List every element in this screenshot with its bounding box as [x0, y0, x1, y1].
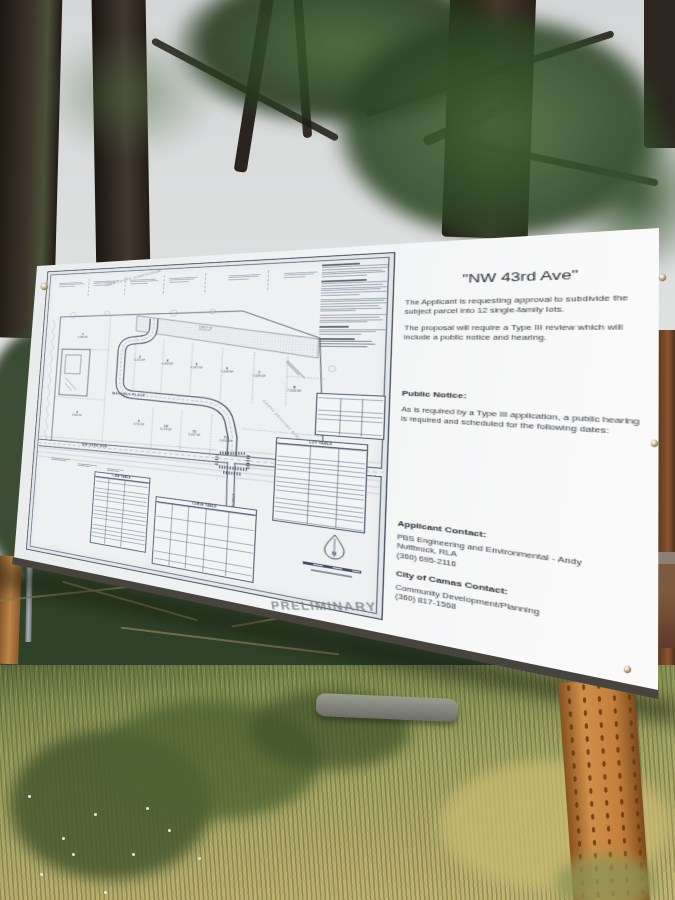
- note-block: [320, 314, 387, 323]
- note-block: [321, 278, 388, 296]
- lot-label-3: 35,250 SF: [129, 355, 150, 362]
- public-notice-body: As is required by a Type III application…: [401, 405, 649, 438]
- screw-icon: [41, 283, 48, 290]
- intro-paragraph-2: The proposal will require a Type III rev…: [404, 322, 650, 342]
- lot-label-2: 25,003 SF: [68, 409, 87, 417]
- screw-icon: [659, 274, 666, 281]
- screw-icon: [651, 440, 658, 447]
- foliage: [40, 30, 220, 160]
- line-table: LINE TABLE: [90, 471, 151, 552]
- tract-b-hatch: [135, 313, 320, 358]
- tract-a-facility: [59, 349, 90, 396]
- screw-icon: [624, 666, 631, 673]
- note-block: [319, 338, 386, 347]
- lot-table: LOT TABLE: [272, 437, 368, 533]
- vegetation-line: [44, 320, 56, 444]
- lot-label-8: 87,528 SF: [281, 384, 307, 393]
- public-notice-title: Public Notice:: [402, 389, 649, 408]
- note-block: [319, 326, 386, 335]
- lot-label-7: 77,439 SF: [247, 370, 272, 378]
- lot-label-4: 45,000 SF: [157, 358, 179, 366]
- photo-scene: LAKE POINTE SUBDIVISION: [0, 0, 675, 900]
- sign-text-column: "NW 43rd Ave" The Applicant is requestin…: [395, 249, 649, 647]
- intro-paragraph-1: The Applicant is requesting approval to …: [405, 293, 650, 316]
- north-letter: N: [332, 551, 337, 557]
- wildflowers: [28, 795, 31, 798]
- plan-notes-column: [318, 261, 388, 350]
- sign-heading: "NW 43rd Ave": [406, 264, 650, 287]
- lot-label-9: 94,750 SF: [128, 418, 149, 426]
- site-plan-sheet: LAKE POINTE SUBDIVISION: [26, 252, 395, 620]
- dimension-standards-table: [315, 393, 386, 440]
- lot-label-6: 67,438 SF: [215, 366, 239, 374]
- stamp-preliminary: PRELIMINARY: [270, 599, 378, 614]
- note-block: [320, 298, 387, 312]
- note-block: [322, 261, 389, 277]
- lot-label-5: 55,437 SF: [185, 362, 208, 370]
- lot-label-1: 15,583 SF: [73, 332, 92, 339]
